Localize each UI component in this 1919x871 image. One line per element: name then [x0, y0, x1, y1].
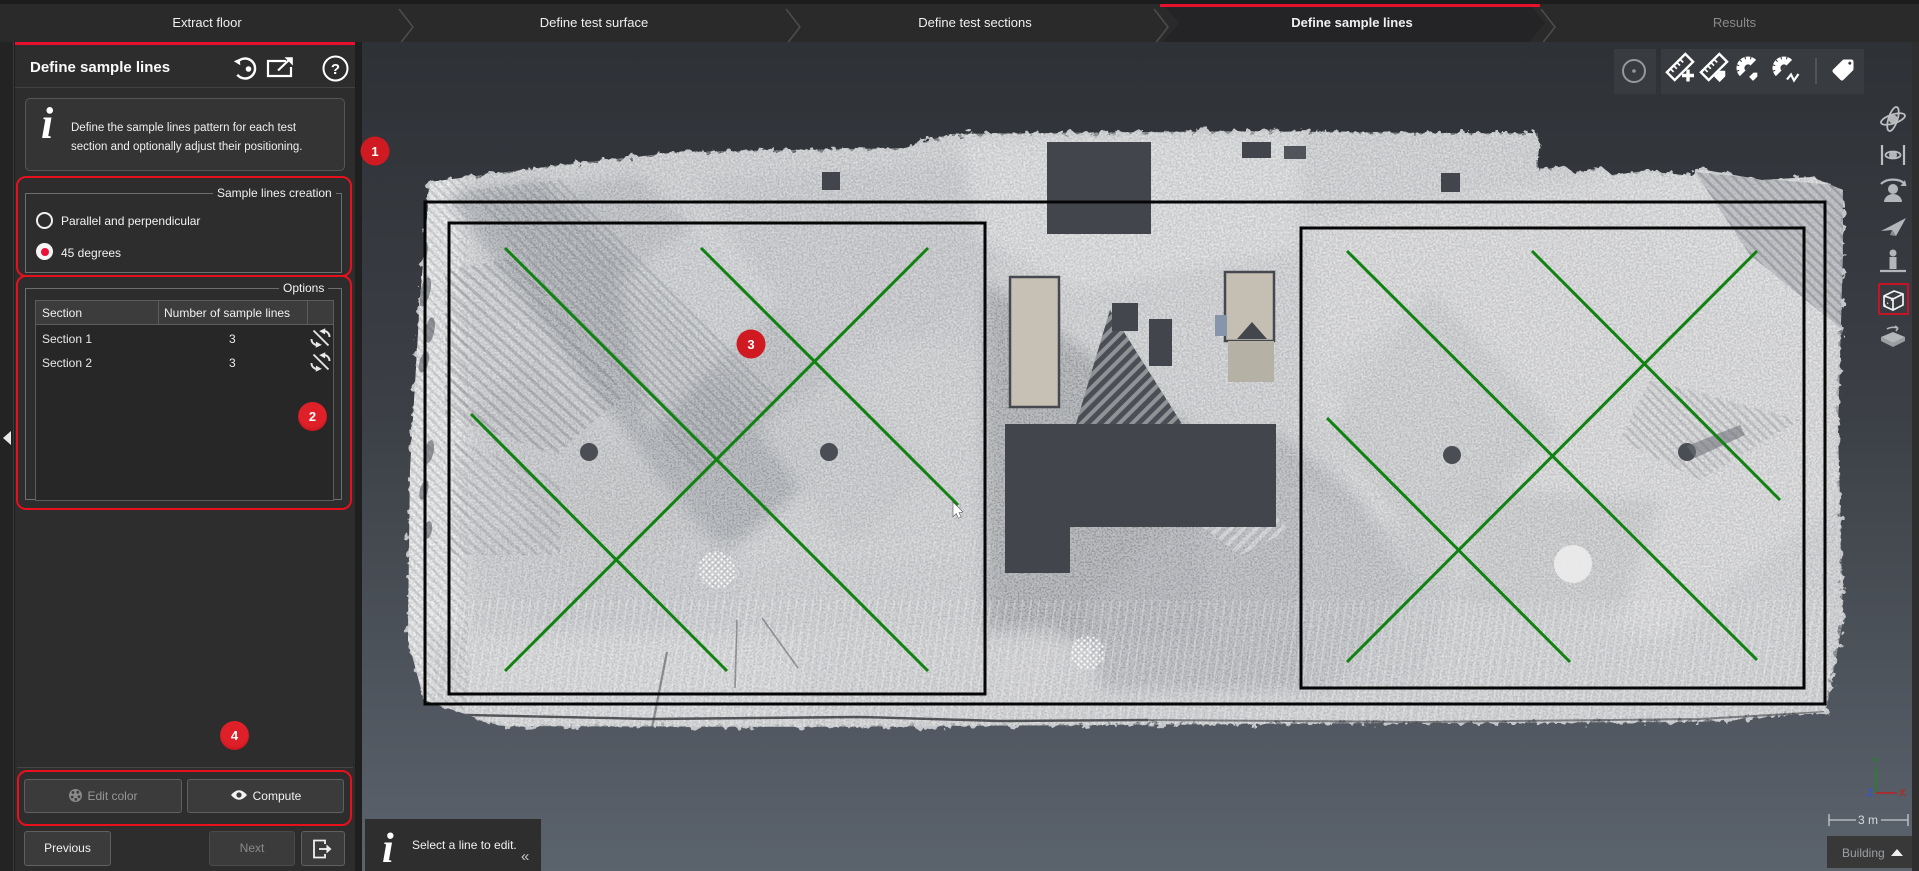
svg-text:Y: Y [1872, 756, 1879, 767]
svg-text:Select a line to edit.: Select a line to edit. [412, 838, 517, 852]
svg-text:1: 1 [371, 144, 378, 159]
svg-text:Building: Building [1842, 846, 1885, 860]
svg-text:i: i [382, 826, 394, 871]
svg-text:3: 3 [747, 337, 754, 352]
svg-text:?: ? [331, 61, 340, 78]
svg-text:3 m: 3 m [1858, 813, 1878, 827]
svg-text:«: « [521, 848, 529, 865]
svg-text:Z: Z [1867, 788, 1873, 799]
svg-text:X: X [1899, 788, 1906, 799]
